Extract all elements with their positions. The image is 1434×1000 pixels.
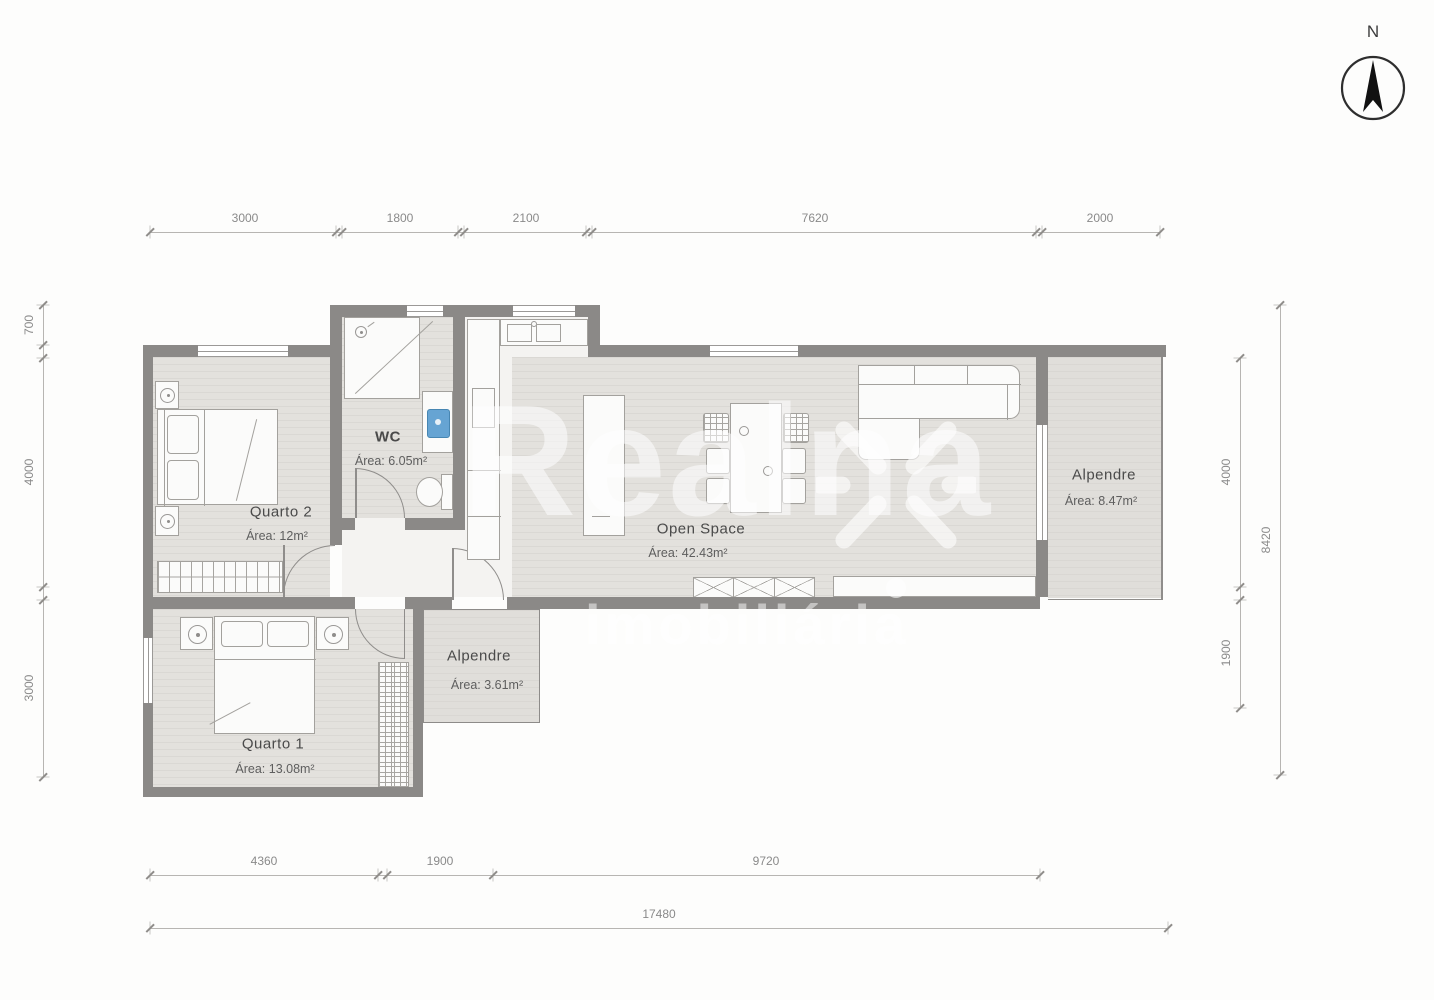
dining-chair [783,413,809,443]
sideboard-x [693,577,815,598]
room-label-quarto2: Quarto 2 [250,504,312,521]
dimension-value: 700 [22,315,36,335]
alpendre-bottom-edge [1048,599,1163,601]
dimension-line-left [43,305,44,777]
plate-icon [739,426,749,436]
kitchen-sink [536,324,561,342]
kitchen-counter-top [500,319,588,346]
nightstand [316,617,349,650]
wall [143,703,153,787]
dimension-value: 3000 [232,211,259,225]
dining-chair [782,478,806,504]
dimension-value: 17480 [642,907,675,921]
compass-icon [1339,54,1407,122]
dining-chair [706,478,730,504]
wall [1036,540,1048,597]
nightstand [180,617,213,650]
room-label-open-space: Open Space [657,521,745,538]
wall [453,317,465,518]
dining-chair [703,413,729,443]
window-kitchen [513,305,575,317]
dining-table [730,403,782,513]
nightstand [155,381,179,409]
kitchen-counter-left [467,319,500,560]
wc-sink-counter [422,391,453,453]
room-area-alpendre-right: Área: 8.47m² [1065,494,1137,508]
dimension-value: 4000 [22,459,36,486]
wardrobe-quarto2 [157,561,283,593]
dimension-value: 1800 [387,211,414,225]
dimension-value: 7620 [802,211,829,225]
cabinet-x-icon [694,578,734,597]
pillow [267,621,309,647]
plate-icon [763,466,773,476]
sofa-back [858,365,1020,419]
cabinet-x-icon [734,578,774,597]
door-entrance-leaf [452,548,454,600]
alpendre-right-edge [1161,357,1163,600]
wall [405,518,465,530]
room-label-alpendre-small: Alpendre [447,648,511,665]
dimension-line-right-inner [1240,358,1241,708]
room-area-wc: Área: 6.05m² [355,454,427,468]
wall [413,609,423,797]
wall [143,357,153,638]
window-quarto2 [198,345,288,357]
dimension-value: 1900 [1219,640,1233,667]
room-label-alpendre-right: Alpendre [1072,467,1136,484]
wall [330,305,342,357]
dimension-line-top [150,232,1160,233]
north-label: N [1367,22,1379,42]
dimension-value: 3000 [22,675,36,702]
sofa-chaise [858,418,920,460]
cabinet-x-icon [775,578,814,597]
north-arrow: N [1337,22,1409,134]
shower [344,317,420,399]
wall [507,597,1040,609]
cooktop [472,388,495,428]
wardrobe-quarto1 [378,662,409,788]
sliding-door-alpendre [1036,425,1048,540]
dining-chair [782,448,806,474]
window-quarto1 [143,638,153,703]
kitchen-island [583,395,625,536]
door-wc-leaf [355,468,357,518]
pillow [221,621,263,647]
dimension-value: 8420 [1259,527,1273,554]
media-counter [833,576,1036,597]
room-area-open-space: Área: 42.43m² [648,546,727,560]
bed-quarto2 [157,409,278,505]
wall [588,305,600,357]
dimension-line-bottom-inner [150,875,1040,876]
window-wc [407,305,443,317]
dining-chair [706,448,730,474]
floor-alpendre-small [423,609,540,723]
wall [330,357,342,545]
wall [342,518,355,530]
wall [1036,357,1048,425]
kitchen-sink [507,324,532,342]
wall [600,345,1166,357]
door-quarto1-leaf [404,609,406,659]
dimension-value: 1900 [427,854,454,868]
wall [143,597,355,609]
door-quarto2-leaf [283,545,285,597]
room-area-quarto1: Área: 13.08m² [235,762,314,776]
nightstand [155,506,179,536]
room-area-quarto2: Área: 12m² [246,529,308,543]
room-area-alpendre-small: Área: 3.61m² [451,678,523,692]
room-label-wc: WC [375,429,401,446]
dimension-line-bottom-outer [150,928,1168,929]
dimension-line-right-outer [1280,305,1281,775]
toilet-bowl [416,477,443,507]
wall [143,787,423,797]
room-label-quarto1: Quarto 1 [242,736,304,753]
wall [405,597,452,609]
window-open-space [710,345,798,357]
dimension-value: 4360 [251,854,278,868]
pillow [167,415,199,454]
pillow [167,460,199,500]
floor-plan: Quarto 2 Área: 12m² WC Área: 6.05m² Open… [0,0,1434,1000]
dimension-value: 9720 [753,854,780,868]
dimension-value: 2000 [1087,211,1114,225]
bed-quarto1 [214,616,315,734]
dimension-value: 4000 [1219,459,1233,486]
dimension-value: 2100 [513,211,540,225]
